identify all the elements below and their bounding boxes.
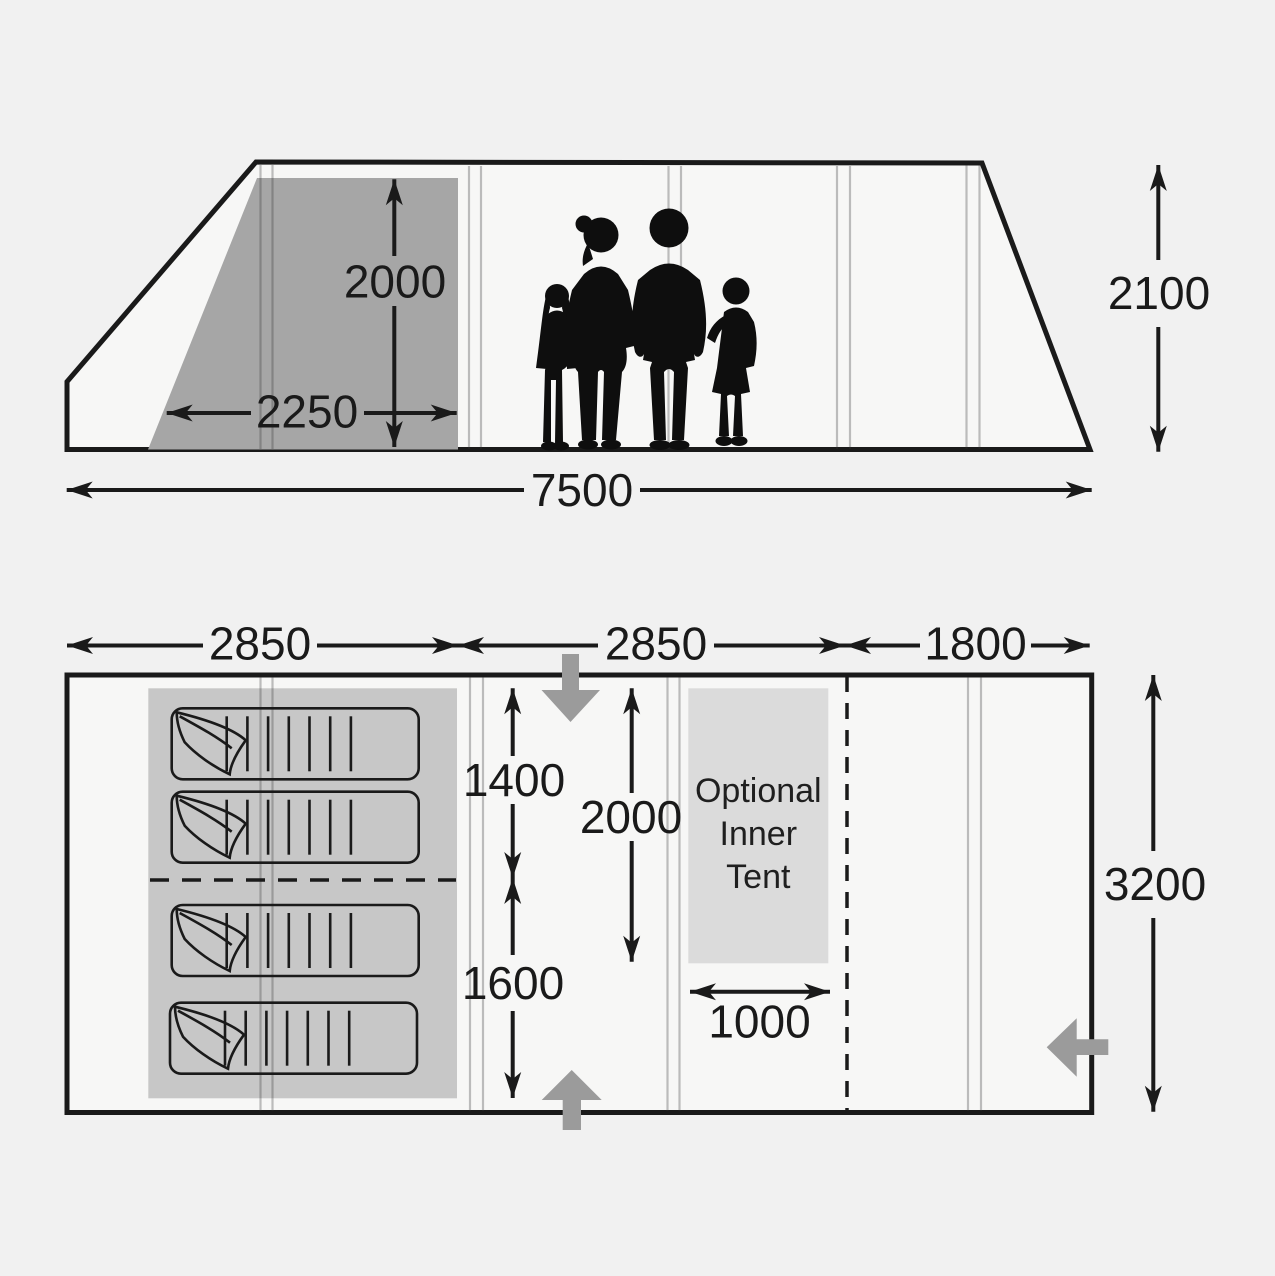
dim-label-bedroom-rear: 1600 xyxy=(462,957,564,1009)
dim-total-width: 3200 xyxy=(1104,675,1206,1112)
inner-tent-label-line2: Inner xyxy=(720,815,798,853)
dim-label-section-2: 2850 xyxy=(605,618,707,670)
floor-plan: Optional Inner Tent 2850 2850 1800 xyxy=(67,618,1206,1131)
sleeping-area xyxy=(148,688,457,1098)
dim-label-bedroom-front: 1400 xyxy=(463,754,565,806)
dim-label-total-height: 2100 xyxy=(1108,267,1210,319)
side-view: 2000 2250 7500 2100 xyxy=(67,162,1210,516)
dim-total-height: 2100 xyxy=(1108,165,1210,452)
dim-label-total-length: 7500 xyxy=(531,464,633,516)
dim-label-section-3: 1800 xyxy=(924,618,1026,670)
diagram-svg: 2000 2250 7500 2100 xyxy=(0,0,1275,1276)
dim-label-total-width: 3200 xyxy=(1104,858,1206,910)
dim-label-living-depth: 2000 xyxy=(580,791,682,843)
inner-tent-label-line1: Optional xyxy=(695,772,822,810)
dim-total-length: 7500 xyxy=(67,464,1092,516)
dim-label-section-1: 2850 xyxy=(209,618,311,670)
dim-label-inner-tent-width: 1000 xyxy=(708,996,810,1048)
dim-inner-tent-width: 1000 xyxy=(690,992,830,1048)
dim-section-1: 2850 xyxy=(67,618,458,670)
dim-label-cabin-height: 2000 xyxy=(344,256,446,308)
dim-label-cabin-width: 2250 xyxy=(256,386,358,438)
tent-dimensions-diagram: 2000 2250 7500 2100 xyxy=(0,0,1275,1276)
inner-tent-label-line3: Tent xyxy=(726,858,791,896)
dim-section-3: 1800 xyxy=(845,618,1090,670)
dim-section-2: 2850 xyxy=(458,618,845,670)
